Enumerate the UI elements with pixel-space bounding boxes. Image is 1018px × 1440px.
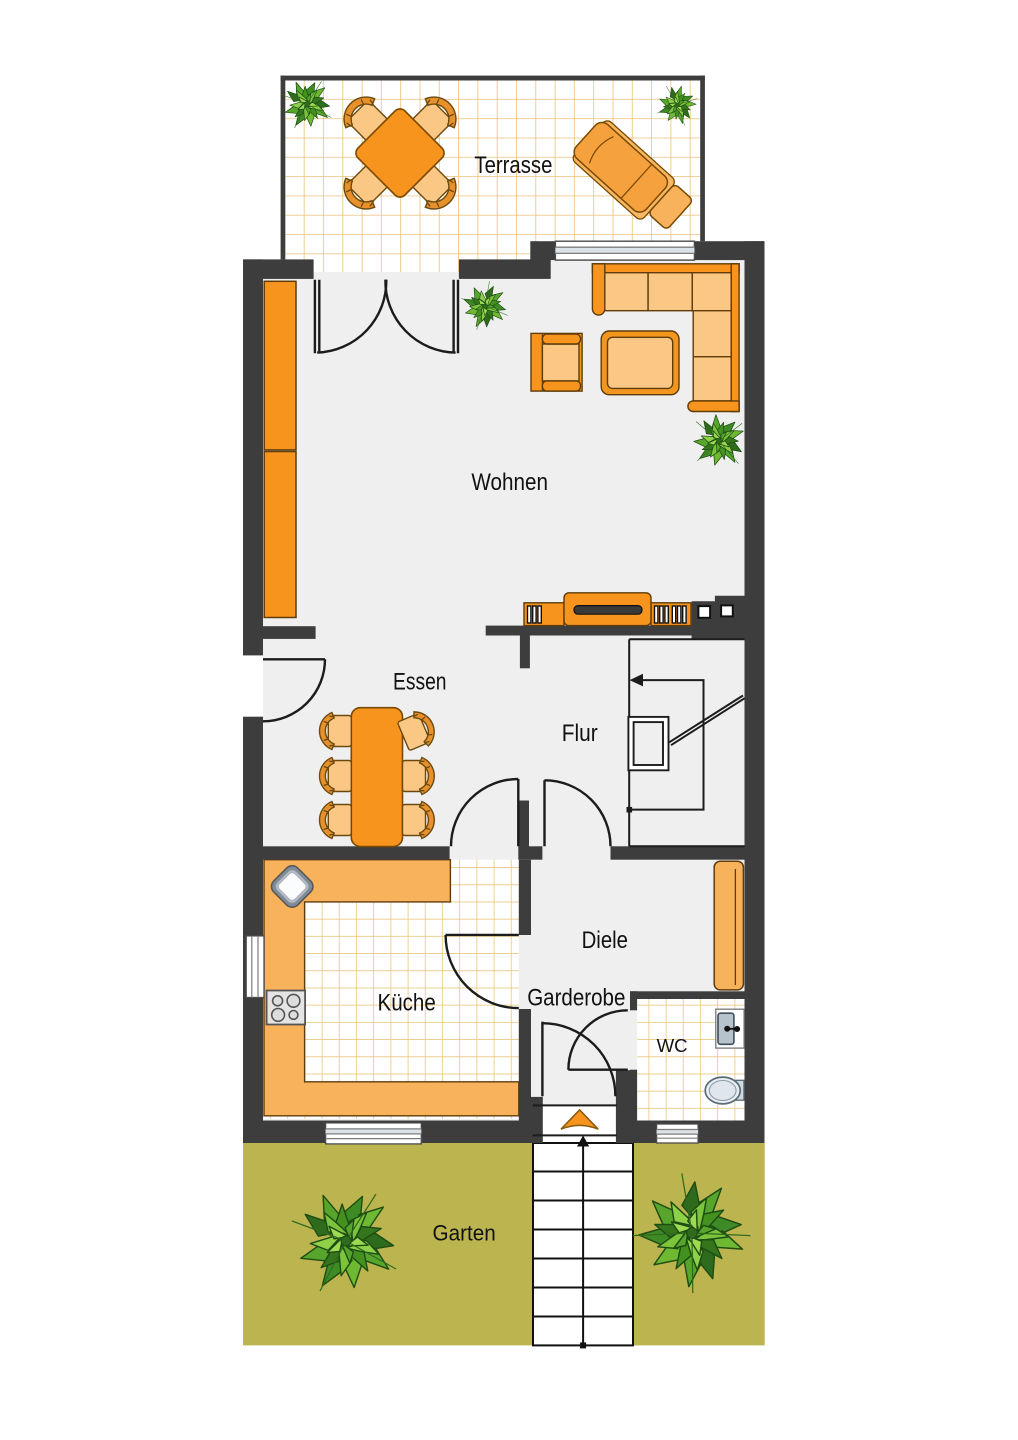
svg-text:WC: WC [657,1036,688,1056]
svg-text:Terrasse: Terrasse [474,152,552,179]
svg-text:Garderobe: Garderobe [527,985,625,1012]
svg-text:Flur: Flur [562,720,598,747]
svg-text:Diele: Diele [582,927,628,954]
svg-text:Essen: Essen [393,669,447,696]
svg-text:Wohnen: Wohnen [471,469,548,496]
svg-text:Küche: Küche [378,990,436,1017]
svg-text:Garten: Garten [433,1221,496,1246]
